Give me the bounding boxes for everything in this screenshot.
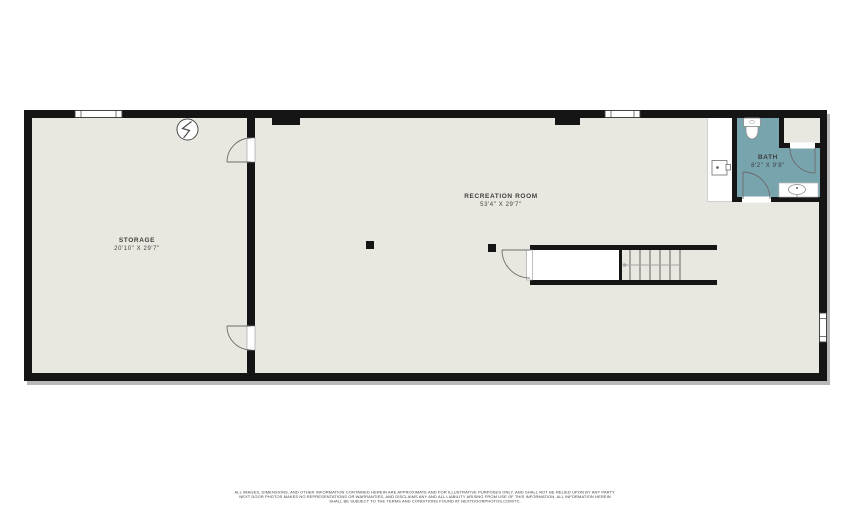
room-label-recreation: RECREATION ROOM 53'4" X 29'7" bbox=[421, 193, 581, 209]
support-column bbox=[366, 241, 374, 249]
stairs-landing bbox=[533, 250, 619, 280]
wall-closet-bottom bbox=[779, 143, 820, 148]
room-name: BATH bbox=[726, 154, 810, 162]
wall-bath-bottom bbox=[732, 197, 820, 202]
disclaimer-text: ALL IMAGES, DIMENSIONS, AND OTHER INFORM… bbox=[125, 490, 725, 504]
room-name: RECREATION ROOM bbox=[421, 193, 581, 201]
disclaimer-line: SHALL BE SUBJECT TO THE TERMS AND CONDIT… bbox=[125, 499, 725, 504]
chimney-duct bbox=[555, 118, 580, 125]
room-dimensions: 20'10" X 29'7" bbox=[57, 245, 217, 253]
closet-floor bbox=[784, 118, 820, 143]
room-label-bath: BATH 8'2" X 9'8" bbox=[726, 154, 810, 170]
wall-stairs-bottom bbox=[530, 280, 717, 285]
wall-stairs-mid bbox=[619, 250, 622, 280]
floorplan-page: STORAGE 20'10" X 29'7" RECREATION ROOM 5… bbox=[0, 0, 850, 520]
room-dimensions: 8'2" X 9'8" bbox=[726, 162, 810, 170]
room-dimensions: 53'4" X 29'7" bbox=[421, 201, 581, 209]
room-name: STORAGE bbox=[57, 237, 217, 245]
wall-stairs-top bbox=[530, 245, 717, 250]
support-column bbox=[488, 244, 496, 252]
wall-storage-divider bbox=[247, 118, 255, 373]
room-label-storage: STORAGE 20'10" X 29'7" bbox=[57, 237, 217, 253]
chimney-duct bbox=[272, 118, 300, 125]
